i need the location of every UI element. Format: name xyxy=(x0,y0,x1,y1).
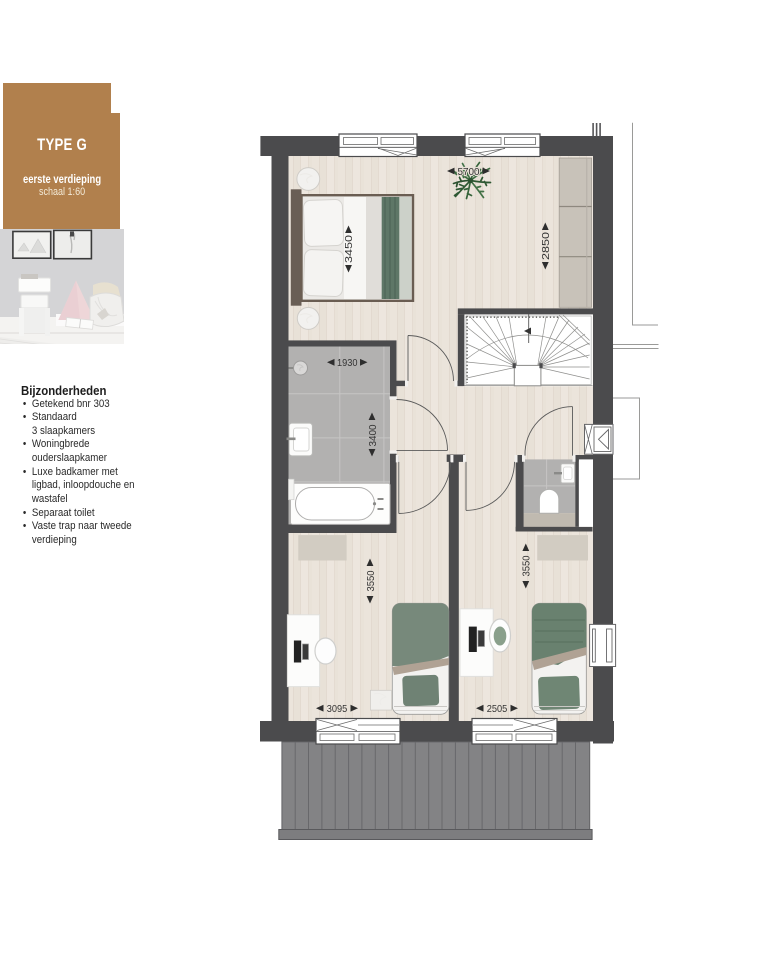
svg-text:3550: 3550 xyxy=(366,570,377,591)
svg-text:2850: 2850 xyxy=(541,232,552,260)
svg-text:1930: 1930 xyxy=(337,358,358,369)
svg-text:2505: 2505 xyxy=(487,704,508,715)
svg-text:3400: 3400 xyxy=(368,424,379,446)
svg-text:5700: 5700 xyxy=(458,167,480,178)
svg-text:3450: 3450 xyxy=(344,235,355,263)
svg-text:3550: 3550 xyxy=(522,555,533,576)
svg-text:3095: 3095 xyxy=(327,704,348,715)
